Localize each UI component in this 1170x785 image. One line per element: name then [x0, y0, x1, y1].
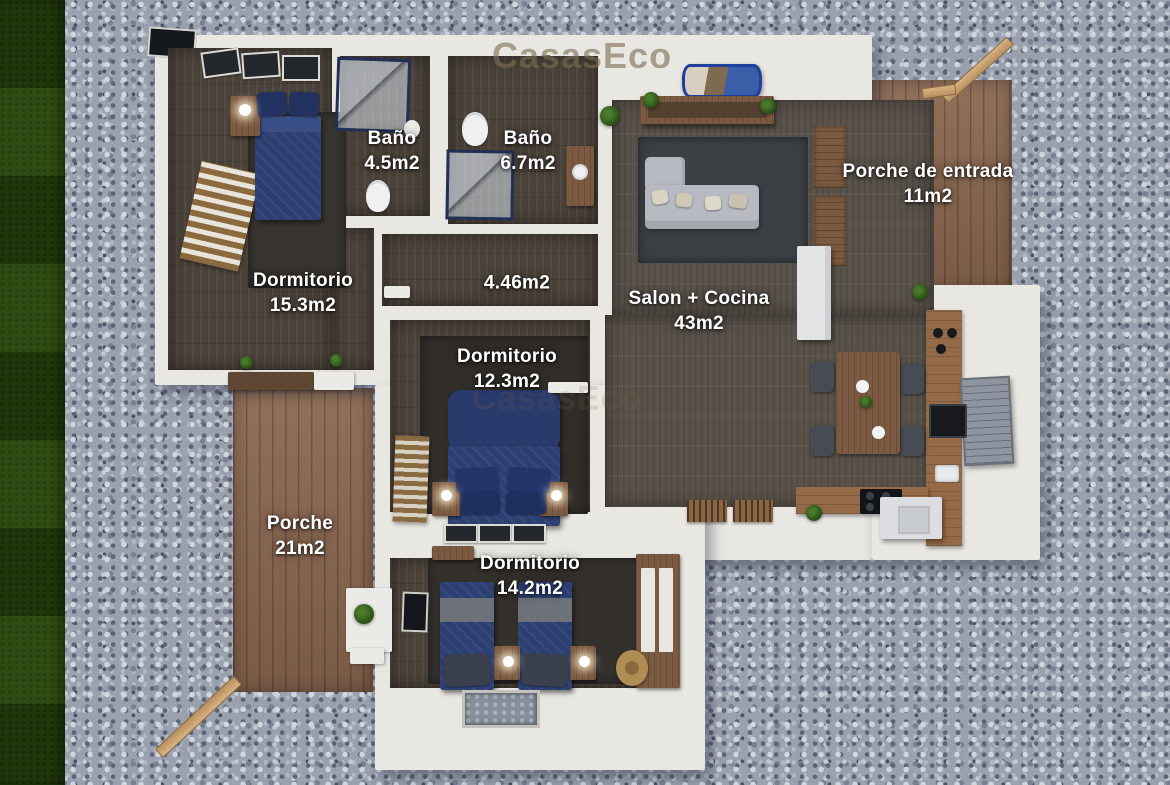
room-label-porche: Porche 21m2 [267, 511, 333, 561]
garden-chair [350, 648, 384, 664]
dining-chair [810, 426, 834, 456]
toilet [462, 112, 488, 146]
bedside-table [230, 96, 260, 136]
room-label-salon: Salon + Cocina 43m2 [629, 286, 770, 336]
room-area: 43m2 [629, 311, 770, 336]
potted-plant [600, 106, 620, 126]
table-lamp [503, 656, 514, 667]
potted-plant [240, 356, 253, 369]
storage-bench [687, 500, 727, 522]
watermark-logo: CasasEco [492, 35, 672, 77]
dining-chair [900, 364, 924, 394]
floor-picture-frame [478, 524, 512, 543]
window-curtain [393, 435, 430, 522]
potted-plant [806, 505, 822, 521]
room-label-bano2: Baño 6.7m2 [500, 126, 555, 176]
bed-pillow [521, 653, 569, 687]
bed-pillow [460, 492, 500, 514]
room-label-bano1: Baño 4.5m2 [364, 126, 419, 176]
room-area: 4.46m2 [484, 271, 550, 296]
throw-pillow [705, 195, 722, 210]
table-plant [860, 396, 872, 408]
room-label-pasillo: 4.46m2 [484, 271, 550, 296]
kitchen-sink [935, 465, 959, 482]
pergola-beam [155, 676, 242, 758]
throw-pillow [675, 192, 692, 208]
dinner-plate [872, 426, 885, 439]
table-lamp [551, 490, 562, 501]
potted-plant [330, 354, 343, 367]
refrigerator [797, 246, 831, 340]
room-label-dormitorio2: Dormitorio 12.3m2 [457, 344, 557, 394]
wall-tv [682, 64, 762, 98]
doormat [462, 690, 540, 728]
room-name: Baño [364, 126, 419, 151]
burner [866, 492, 874, 500]
potted-plant [643, 92, 659, 108]
grass-lawn [0, 0, 65, 785]
bed-pillow [506, 492, 546, 514]
counter-appliance [936, 344, 946, 354]
room-area: 6.7m2 [500, 151, 555, 176]
bed-pillow [443, 653, 491, 687]
room-area: 21m2 [267, 536, 333, 561]
bed-blanket-fold [255, 116, 321, 132]
bed-blanket-band [518, 598, 572, 622]
room-area: 12.3m2 [457, 369, 557, 394]
potted-plant [354, 604, 374, 624]
room-label-porche-entrada: Porche de entrada 11m2 [843, 159, 1014, 209]
room-area: 14.2m2 [480, 576, 580, 601]
dining-chair [810, 362, 834, 392]
wall-art-frames [200, 47, 241, 78]
room-area: 15.3m2 [253, 293, 353, 318]
room-name: Baño [500, 126, 555, 151]
wall-shelf [384, 286, 410, 298]
shower [335, 57, 412, 134]
room-name: Dormitorio [480, 551, 580, 576]
dining-chair [900, 426, 924, 456]
room-name: Dormitorio [253, 268, 353, 293]
throw-pillow [651, 189, 669, 206]
island-inset [898, 506, 930, 534]
wardrobe-door [641, 568, 655, 652]
room-label-dormitorio1: Dormitorio 15.3m2 [253, 268, 353, 318]
wardrobe-door [659, 568, 673, 652]
counter-appliance [947, 328, 957, 338]
solar-panel [960, 376, 1015, 466]
table-lamp [441, 490, 452, 501]
floor-plan-scene: Baño 4.5m2 Baño 6.7m2 Porche de entrada … [0, 0, 1170, 785]
window [401, 592, 428, 633]
room-name: Porche de entrada [843, 159, 1014, 184]
room-area: 11m2 [843, 184, 1014, 209]
bed-blanket-band [440, 598, 494, 622]
entry-door [814, 126, 846, 188]
room-name: Salon + Cocina [629, 286, 770, 311]
tv-console-shelf [648, 102, 766, 118]
counter-appliance [933, 328, 943, 338]
dinner-plate [856, 380, 869, 393]
bed-pillow [507, 467, 550, 493]
throw-pillow [728, 193, 748, 209]
room-name: Dormitorio [457, 344, 557, 369]
sun-hat [616, 650, 648, 686]
table-lamp [239, 104, 251, 116]
wall-art-frames [241, 51, 281, 80]
vanity-unit [314, 372, 354, 390]
potted-plant [760, 98, 776, 114]
bed-pillow [455, 467, 498, 493]
storage-bench [733, 500, 773, 522]
floor-picture-frame [512, 524, 546, 543]
room-name: Porche [267, 511, 333, 536]
desk [432, 546, 474, 560]
wall-art-frames [282, 55, 320, 81]
burner [866, 503, 874, 511]
room-label-dormitorio3: Dormitorio 14.2m2 [480, 551, 580, 601]
bed-pillow [256, 91, 287, 117]
bathroom-sink [572, 164, 588, 180]
floor-picture-frame [444, 524, 478, 543]
oven [929, 404, 967, 438]
toilet [366, 180, 390, 212]
room-area: 4.5m2 [364, 151, 419, 176]
table-lamp [579, 656, 590, 667]
potted-plant [912, 284, 928, 300]
sideboard [228, 372, 314, 390]
bed-pillow [288, 91, 319, 117]
